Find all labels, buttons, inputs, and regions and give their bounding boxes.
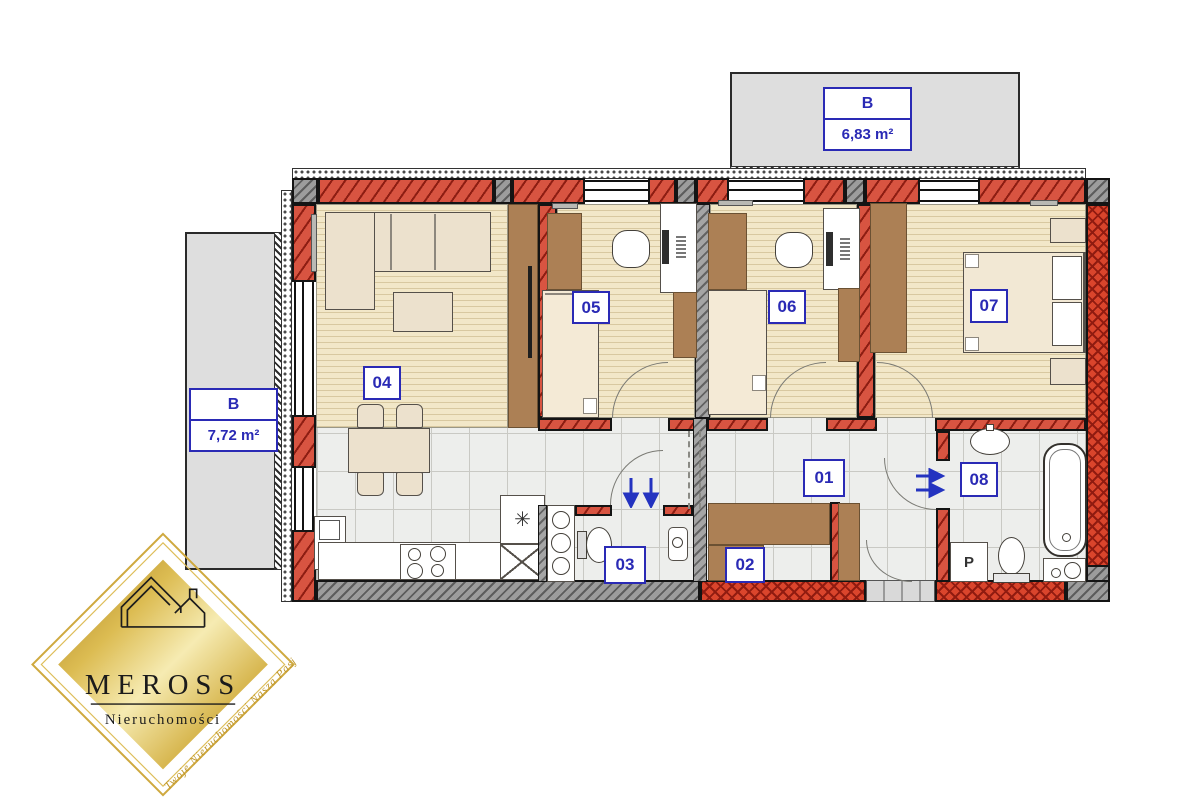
room-label-04: 04 xyxy=(363,366,401,400)
closet-cabinet xyxy=(708,503,830,545)
pipe-icon xyxy=(551,533,571,553)
keyboard-icon xyxy=(676,236,686,258)
balcony-top-letter: B xyxy=(825,89,910,120)
drain-icon xyxy=(1062,533,1071,542)
bed-fold xyxy=(752,375,766,391)
pillow xyxy=(1052,302,1082,346)
dining-chair xyxy=(357,472,384,496)
monitor-icon xyxy=(662,230,669,264)
pillow xyxy=(1052,256,1082,300)
entrance-threshold xyxy=(866,580,935,602)
wardrobe xyxy=(870,203,907,353)
burner-icon xyxy=(430,546,446,562)
wall-column xyxy=(845,178,865,204)
room-label-08: 08 xyxy=(960,462,998,497)
room-label-05: 05 xyxy=(572,291,610,324)
radiator xyxy=(311,214,317,272)
wall-column xyxy=(676,178,696,204)
keyboard-icon xyxy=(840,238,850,260)
radiator xyxy=(718,200,753,206)
room-label-06: 06 xyxy=(768,290,806,324)
radiator xyxy=(552,203,578,209)
entry-direction-arrows-icon xyxy=(914,468,946,500)
window xyxy=(585,180,648,202)
wall-segment xyxy=(512,178,585,204)
wall-segment xyxy=(292,415,316,468)
wall-segment xyxy=(935,580,1066,602)
pipe-icon xyxy=(552,511,570,529)
room-label-07: 07 xyxy=(970,289,1008,323)
toilet xyxy=(998,537,1025,575)
meross-logo: MEROSS Nieruchomości Twoje Nieruchomości… xyxy=(18,528,308,800)
balcony-left-label: B 7,72 m² xyxy=(189,388,278,452)
expansion-joint xyxy=(688,431,690,509)
logo-gold-diamond xyxy=(58,560,268,770)
drain-icon xyxy=(1051,568,1061,578)
window xyxy=(729,180,803,202)
dining-chair xyxy=(396,404,423,428)
coffee-table xyxy=(393,292,453,332)
expansion-joint xyxy=(699,431,701,509)
bed-fold xyxy=(965,337,979,351)
single-bed xyxy=(708,290,767,415)
burner-icon xyxy=(408,548,421,561)
wall-segment xyxy=(865,178,920,204)
washing-machine: P xyxy=(950,542,988,582)
wall-column xyxy=(1066,580,1110,602)
wall-segment xyxy=(935,418,1086,431)
balcony-door-window xyxy=(294,282,314,415)
room-label-02: 02 xyxy=(725,547,765,583)
stairs-direction-arrows-icon xyxy=(620,476,664,508)
burner-icon xyxy=(407,563,423,579)
wall-segment xyxy=(1086,204,1110,602)
wall-column xyxy=(292,178,318,204)
bed-fold xyxy=(583,398,597,414)
wardrobe xyxy=(708,213,747,290)
wall-segment xyxy=(936,508,950,582)
window xyxy=(294,468,314,530)
dining-chair xyxy=(396,472,423,496)
burner-icon xyxy=(431,564,444,577)
plumbing-shaft xyxy=(538,505,547,582)
wall-segment xyxy=(318,178,494,204)
room-label-03: 03 xyxy=(604,546,646,584)
wall-segment xyxy=(803,178,845,204)
window xyxy=(920,180,978,202)
living-room-wardrobe xyxy=(508,204,538,428)
wardrobe xyxy=(547,213,582,290)
monitor-icon xyxy=(826,232,833,266)
pipe-icon xyxy=(552,557,570,575)
toilet-base xyxy=(993,573,1030,583)
nightstand xyxy=(1050,218,1086,243)
dining-chair xyxy=(357,404,384,428)
tv-icon xyxy=(528,266,532,358)
wall-segment xyxy=(826,418,877,431)
wall-segment xyxy=(668,418,695,431)
sofa-chaise xyxy=(325,212,375,310)
wall-segment xyxy=(538,418,612,431)
logo-brand-text: MEROSS xyxy=(85,669,241,701)
wardrobe xyxy=(838,288,860,362)
wall-segment xyxy=(936,431,950,461)
balcony-top-area: 6,83 m² xyxy=(825,120,910,149)
wall-segment xyxy=(700,580,866,602)
dining-table xyxy=(348,428,430,473)
room-label-01: 01 xyxy=(803,459,845,497)
logo-subtitle-text: Nieruchomości xyxy=(105,712,221,728)
washbasin xyxy=(970,428,1010,455)
kitchen-cabinet-detail xyxy=(319,520,340,540)
nightstand xyxy=(1050,358,1086,385)
wall-column xyxy=(494,178,512,204)
wardrobe xyxy=(673,292,697,358)
wall-segment xyxy=(575,505,612,516)
balcony-left-area: 7,72 m² xyxy=(191,421,276,450)
balcony-top-label: B 6,83 m² xyxy=(823,87,912,151)
radiator xyxy=(1030,200,1058,206)
tap-icon xyxy=(986,424,994,431)
wall-segment xyxy=(648,178,676,204)
sofa-cushion-line xyxy=(434,214,436,270)
sofa-cushion-line xyxy=(390,214,392,270)
wall-segment xyxy=(707,418,768,431)
closet-cabinet xyxy=(838,503,860,581)
balcony-left-letter: B xyxy=(191,390,276,421)
desk-chair xyxy=(612,230,650,268)
desk-chair xyxy=(775,232,813,268)
wall-column xyxy=(1086,178,1110,204)
bathtub xyxy=(1043,443,1087,557)
floorplan-canvas: B 6,83 m² B 7,72 m² xyxy=(0,0,1200,800)
bed-fold xyxy=(965,254,979,268)
sink-bowl-icon xyxy=(1064,562,1081,579)
drain-icon xyxy=(672,537,683,548)
